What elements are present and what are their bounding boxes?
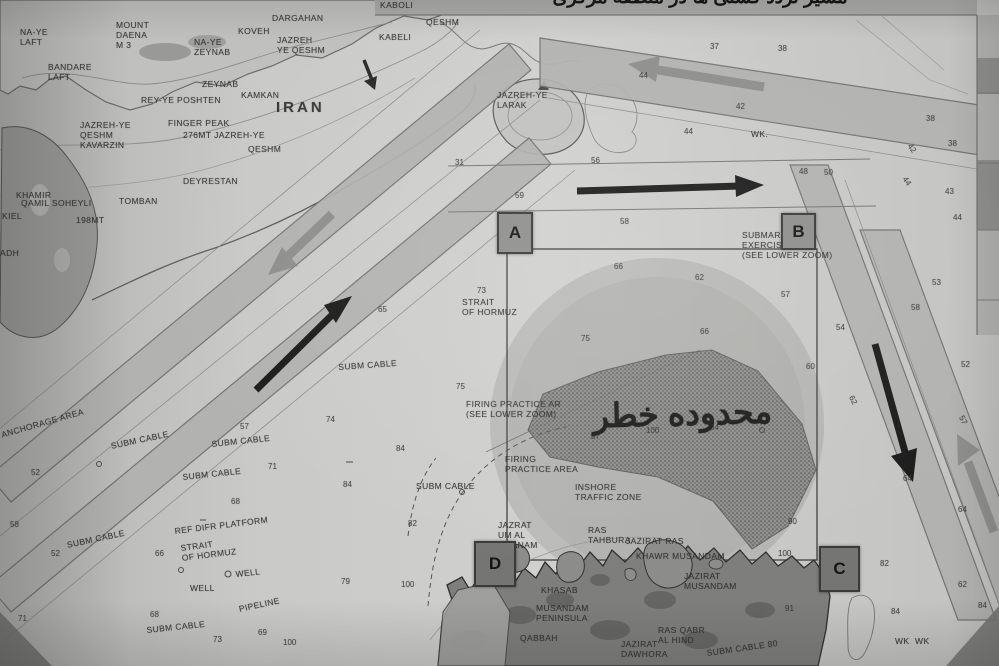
depth-number: 38 [778,44,787,53]
map-label: KIEL [2,211,22,221]
depth-number: 71 [268,462,277,471]
depth-number: 71 [18,614,27,623]
corner-marker-a: A [497,212,533,254]
map-label: FIRING PRACTICE AR (SEE LOWER ZOOM) [466,399,561,419]
depth-number: 58 [911,303,920,312]
map-label: TOMBAN [119,196,158,206]
map-label: KHASAB [541,585,578,595]
depth-number: 68 [231,497,240,506]
map-label: QABBAH [520,633,558,643]
map-label: ADH [0,248,19,258]
depth-number: 73 [477,286,486,295]
depth-number: 48 [799,167,808,176]
depth-number: 64 [903,474,912,483]
map-label: KABOLI [380,0,413,10]
depth-number: 44 [684,127,693,136]
chart-title-clipped: مسیر تردد کشتی ها در منطقه مرکزی [470,0,930,9]
map-label: MUSANDAM PENINSULA [536,603,589,623]
map-label: JAZREH-YE QESHM KAVARZIN [80,120,131,150]
depth-number: 82 [880,559,889,568]
map-label: KOVEH [238,26,270,36]
depth-number: 64 [958,505,967,514]
map-label: RAS TAHBURA [588,525,631,545]
depth-number: 84 [978,601,987,610]
depth-number: 68 [150,610,159,619]
map-label: ZEYNAB [202,79,238,89]
depth-number: 44 [639,71,648,80]
map-label: JAZIRAT DAWHORA [621,639,668,659]
map-label: FIRING PRACTICE AREA [505,454,578,474]
depth-number: 57 [240,422,249,431]
depth-number: 66 [614,262,623,271]
depth-number: 31 [455,158,464,167]
depth-number: 58 [620,217,629,226]
depth-number: 38 [926,114,935,123]
depth-number: 62 [958,580,967,589]
map-label: JAZREH YE QESHM [277,35,325,55]
depth-number: 53 [932,278,941,287]
depth-number: 52 [961,360,970,369]
depth-number: 84 [396,444,405,453]
depth-number: 60 [806,362,815,371]
map-label: KABELI [379,32,411,42]
depth-number: 56 [591,156,600,165]
map-label: JAZREH-YE LARAK [497,90,548,110]
depth-number: 84 [343,480,352,489]
map-label: WELL [190,583,215,593]
depth-number: 75 [581,334,590,343]
map-label: 276MT JAZREH-YE [183,130,265,140]
map-label: MOUNT DAENA M 3 [116,20,149,50]
depth-number: 44 [953,213,962,222]
map-label: REY-YE POSHTEN [141,95,221,105]
depth-number: 79 [341,577,350,586]
depth-number: 50 [824,168,833,177]
danger-zone-label: محدوده خطر [570,391,796,436]
depth-number: 37 [710,42,719,51]
depth-number: 62 [695,273,704,282]
depth-number: 59 [515,191,524,200]
depth-number: 74 [326,415,335,424]
map-label: STRAIT OF HORMUZ [462,297,517,317]
depth-number: 42 [736,102,745,111]
map-label: WK WK [895,636,930,646]
depth-number: 54 [836,323,845,332]
map-label: BANDARE LAFT [48,62,92,82]
depth-number: 57 [781,290,790,299]
depth-number: 100 [778,549,791,558]
depth-number: 38 [948,139,957,148]
map-label: QAMIL SOHEYLI [21,198,92,208]
depth-number: 90 [788,517,797,526]
map-label: DARGAHAN [272,13,323,23]
depth-number: 58 [10,520,19,529]
map-label: JAZIRAT RAS [626,536,684,546]
depth-number: 100 [283,638,296,647]
nautical-chart-photo: NA-YE LAFTMOUNT DAENA M 3KOVEHDARGAHANKA… [0,0,999,666]
depth-number: 65 [378,305,387,314]
persian-title: مسیر تردد کشتی ها در منطقه مرکزی [470,0,930,9]
depth-number: 100 [401,580,414,589]
depth-number: 84 [891,607,900,616]
map-label: NA-YE LAFT [20,27,48,47]
map-label: QESHM [426,17,459,27]
depth-number: 52 [31,468,40,477]
map-label: NA-YE ZEYNAB [194,37,230,57]
map-label: KAMKAN [241,90,279,100]
map-label: JAZIRAT MUSANDAM [684,571,737,591]
depth-number: 91 [785,604,794,613]
corner-marker-d: D [474,541,516,587]
map-label: FINGER PEAK [168,118,230,128]
corner-marker-b: B [781,213,816,250]
depth-number: 75 [456,382,465,391]
depth-number: 66 [700,327,709,336]
depth-number: 66 [155,549,164,558]
map-label: INSHORE TRAFFIC ZONE [575,482,642,502]
depth-number: 69 [258,628,267,637]
map-label: 198MT [76,215,104,225]
map-label: SUBM CABLE [416,481,475,491]
corner-marker-c: C [819,546,860,592]
map-label: DEYRESTAN [183,176,238,186]
depth-number: 52 [51,549,60,558]
depth-number: 82 [408,519,417,528]
map-label: WK. [751,129,768,139]
map-label: KHAWR MUSANDAM [636,551,725,561]
depth-number: 43 [945,187,954,196]
map-label: QESHM [248,144,281,154]
map-label: IRAN [276,103,325,113]
depth-number: 73 [213,635,222,644]
